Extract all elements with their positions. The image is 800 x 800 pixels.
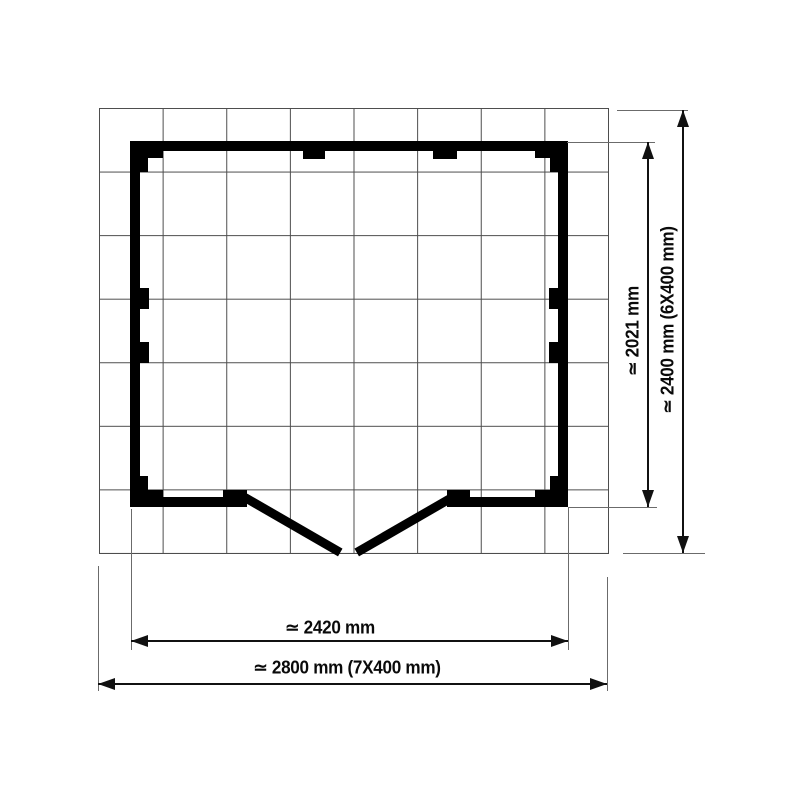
plan-grid — [99, 108, 609, 554]
label-inner-depth: ≃ 2021 mm — [623, 286, 644, 376]
label-outer-depth: ≃ 2400 mm (6X400 mm) — [658, 226, 679, 413]
extension-line — [131, 509, 132, 650]
label-inner-width: ≃ 2420 mm — [285, 618, 375, 639]
dimension-line-outer-depth — [682, 110, 684, 553]
wall-left — [130, 141, 140, 507]
corner-post-top-left — [130, 141, 148, 172]
stud-tab — [549, 342, 558, 363]
stud-tab — [140, 342, 149, 363]
dimension-line-inner-width — [131, 640, 568, 642]
arrowhead-left — [131, 635, 148, 647]
wall-top — [130, 141, 568, 151]
corner-post-top-right — [550, 141, 568, 172]
arrowhead-right — [551, 635, 568, 647]
label-outer-width: ≃ 2800 mm (7X400 mm) — [253, 658, 440, 679]
dimension-line-inner-depth — [647, 142, 649, 507]
arrowhead-up — [677, 110, 689, 127]
dimension-line-outer-width — [98, 683, 607, 685]
arrowhead-right — [590, 678, 607, 690]
corner-post-bottom-left — [130, 476, 148, 507]
extension-line — [623, 553, 705, 554]
extension-line — [98, 566, 99, 691]
arrowhead-down — [642, 490, 654, 507]
stud-tab — [433, 151, 457, 159]
extension-line — [568, 507, 569, 650]
stud-tab — [303, 151, 325, 159]
extension-line — [568, 507, 657, 508]
wall-right — [558, 141, 568, 507]
floor-plan: ≃ 2021 mm ≃ 2400 mm (6X400 mm) ≃ 2420 mm… — [0, 0, 800, 800]
arrowhead-left — [98, 678, 115, 690]
corner-post-bottom-right — [550, 476, 568, 507]
stud-tab — [549, 288, 558, 309]
extension-line — [607, 577, 608, 691]
arrowhead-down — [677, 536, 689, 553]
stud-tab — [140, 288, 149, 309]
arrowhead-up — [642, 142, 654, 159]
